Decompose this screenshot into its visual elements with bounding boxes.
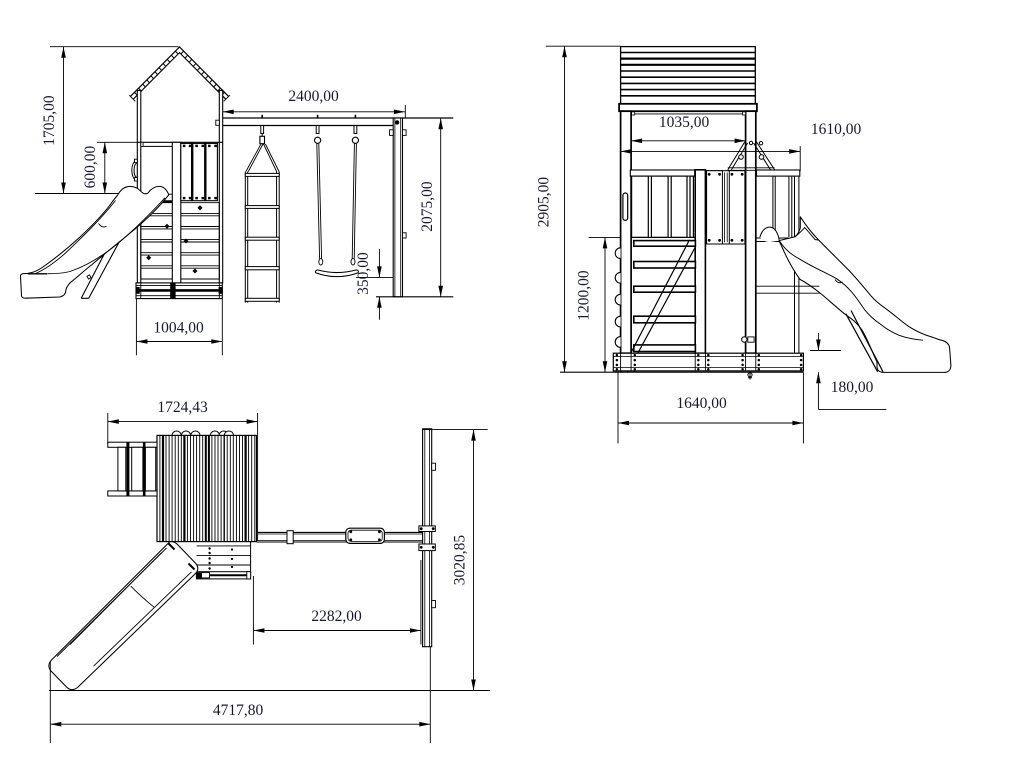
svg-text:1705,00: 1705,00	[41, 95, 58, 146]
svg-text:2400,00: 2400,00	[288, 88, 339, 105]
svg-text:600,00: 600,00	[82, 145, 99, 188]
svg-text:1200,00: 1200,00	[576, 270, 593, 321]
svg-text:1640,00: 1640,00	[676, 395, 727, 412]
svg-text:2075,00: 2075,00	[419, 181, 436, 232]
svg-text:2905,00: 2905,00	[536, 177, 553, 228]
svg-text:180,00: 180,00	[831, 379, 874, 396]
svg-text:1035,00: 1035,00	[659, 114, 710, 131]
svg-text:1610,00: 1610,00	[811, 121, 862, 138]
svg-text:2282,00: 2282,00	[311, 608, 362, 625]
svg-text:1724,43: 1724,43	[157, 399, 208, 416]
svg-text:4717,80: 4717,80	[213, 702, 264, 719]
svg-text:3020,85: 3020,85	[452, 535, 469, 586]
svg-text:1004,00: 1004,00	[153, 320, 204, 337]
